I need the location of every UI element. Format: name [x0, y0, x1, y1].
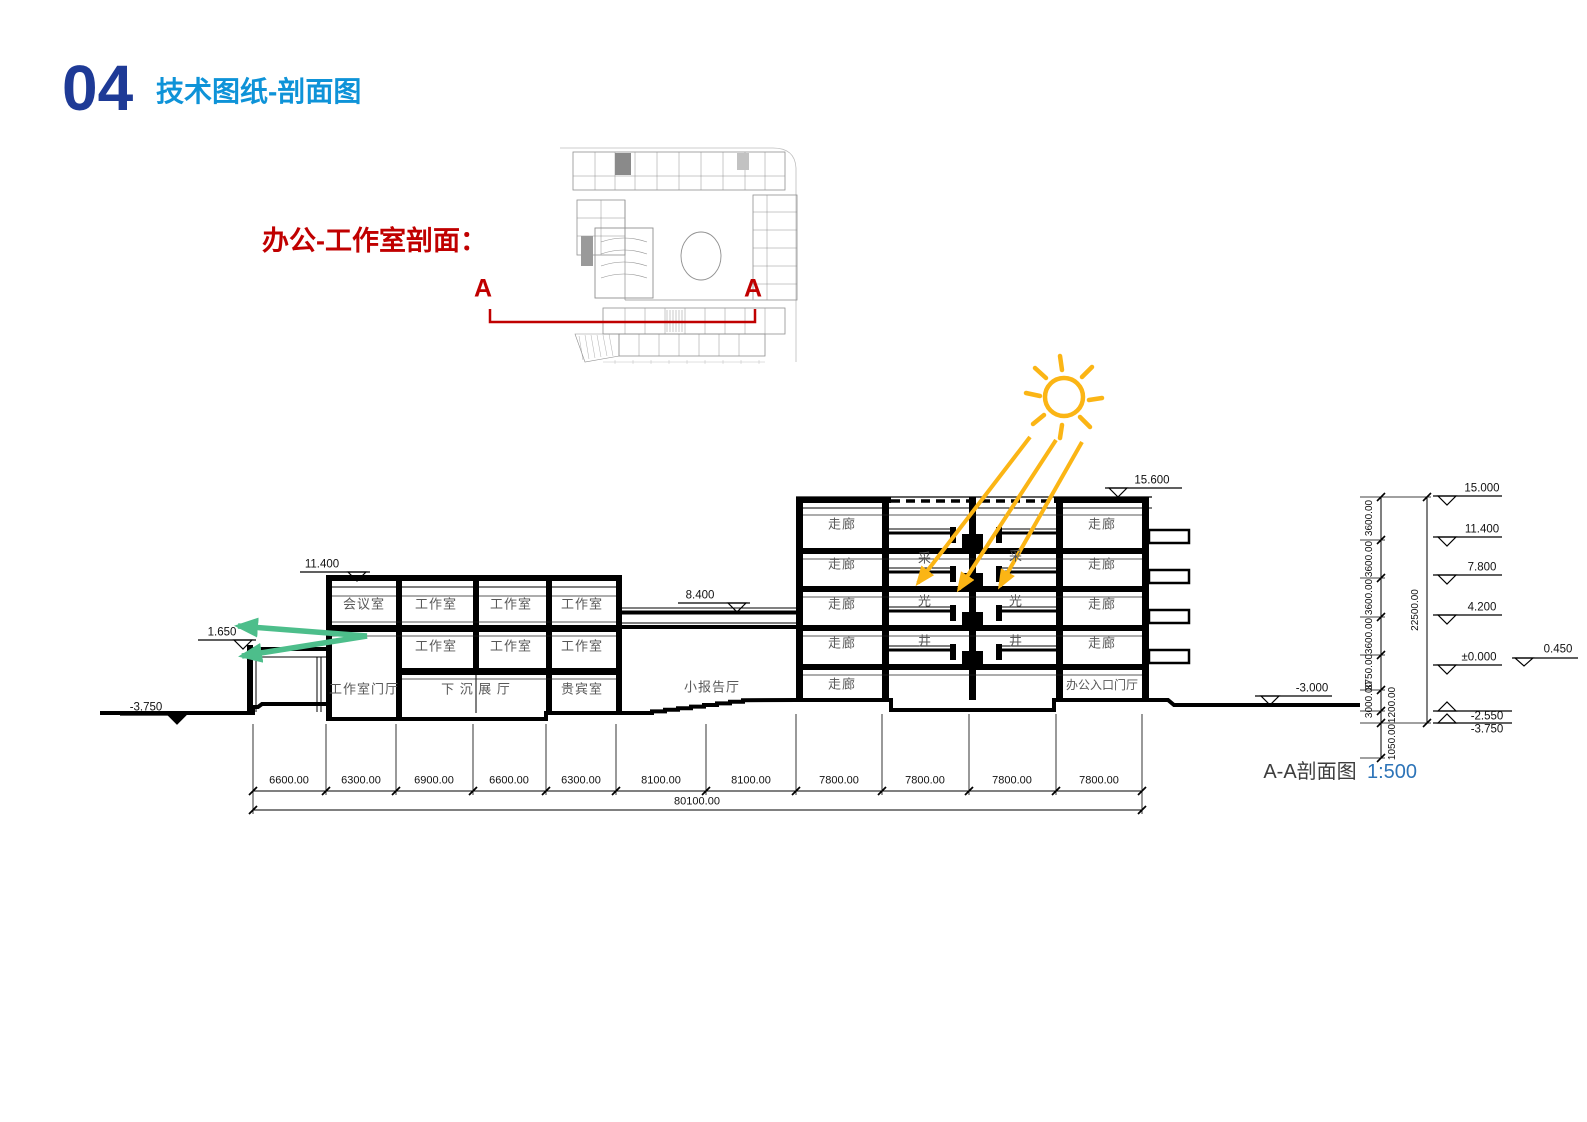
room-label-corridor: 走廊: [828, 637, 856, 650]
hdim-segment: 7800.00: [905, 776, 945, 787]
elevation-ground-right: -3.000: [1296, 683, 1329, 695]
light-well-label: 井: [918, 635, 932, 648]
sun-icon: [1026, 356, 1102, 438]
room-label-lecture-hall: 小报告厅: [684, 681, 740, 694]
light-well-label: 采: [1009, 550, 1023, 563]
plan-marker-a-right: A: [744, 277, 762, 302]
hdim-segment: 6300.00: [561, 776, 601, 787]
room-label-meeting: 会议室: [343, 598, 385, 611]
hdim-segment: 6900.00: [414, 776, 454, 787]
room-label-studio: 工作室: [561, 598, 603, 611]
ground-profile: [100, 700, 1360, 719]
room-label-corridor: 走廊: [828, 518, 856, 531]
hdim-segment: 6600.00: [269, 776, 309, 787]
room-label-corridor: 走廊: [828, 558, 856, 571]
room-label-sunken-hall: 下 沉 展 厅: [441, 683, 511, 696]
room-label-corridor: 走廊: [828, 678, 856, 691]
room-label-office-entrance: 办公入口门厅: [1066, 679, 1138, 691]
hdim-segment: 8100.00: [731, 776, 771, 787]
elevation-m3750: -3.750: [1471, 724, 1504, 736]
link-bridge: [622, 608, 796, 627]
section-drawing: [0, 0, 1587, 1122]
elevation-m2550: -2.550: [1471, 711, 1504, 723]
plan-section-line: [490, 309, 755, 322]
elevation-canopy: 1.650: [208, 627, 237, 639]
room-label-corridor: 走廊: [1088, 558, 1116, 571]
floor-plan-thumbnail: [560, 148, 797, 364]
drawing-caption: A-A剖面图: [1263, 762, 1356, 782]
vdim-below: 1200.00: [1388, 687, 1398, 723]
room-label-studio: 工作室: [415, 598, 457, 611]
room-label-corridor: 走廊: [1088, 598, 1116, 611]
hdim-segment: 6300.00: [341, 776, 381, 787]
room-label-studio-lobby: 工作室门厅: [329, 683, 399, 696]
elevation-0000: ±0.000: [1461, 652, 1496, 664]
light-well-label: 光: [918, 595, 932, 608]
hdim-total: 80100.00: [674, 797, 720, 808]
vdim-segment: 3600.00: [1365, 579, 1375, 615]
vdim-below: 1050.00: [1388, 724, 1398, 760]
plan-marker-a-left: A: [474, 277, 492, 302]
vdim-segment: 3000.00: [1365, 682, 1375, 718]
elevation-7800: 7.800: [1468, 562, 1497, 574]
elevation-0450: 0.450: [1544, 644, 1573, 656]
hdim-segment: 6600.00: [489, 776, 529, 787]
room-label-corridor: 走廊: [1088, 518, 1116, 531]
light-well-label: 光: [1009, 595, 1023, 608]
slide-page: 04 技术图纸-剖面图 办公-工作室剖面：: [0, 0, 1587, 1122]
vdim-segment: 3600.00: [1365, 618, 1375, 654]
light-well-label: 采: [918, 552, 932, 565]
vdim-total: 22500.00: [1411, 589, 1421, 631]
elevation-4200: 4.200: [1468, 602, 1497, 614]
room-label-vip: 贵宾室: [561, 683, 603, 696]
facade-fins: [1149, 530, 1189, 663]
room-label-corridor: 走廊: [1088, 637, 1116, 650]
elevation-15000: 15.000: [1464, 483, 1499, 495]
hdim-segment: 7800.00: [1079, 776, 1119, 787]
hdim-segment: 8100.00: [641, 776, 681, 787]
hdim-segment: 7800.00: [819, 776, 859, 787]
room-label-studio: 工作室: [490, 598, 532, 611]
drawing-scale: 1:500: [1367, 762, 1417, 782]
room-label-studio: 工作室: [415, 640, 457, 653]
elevation-right-roof: 15.600: [1134, 475, 1169, 487]
elevation-bridge: 8.400: [686, 590, 715, 602]
vdim-segment: 3600.00: [1365, 541, 1375, 577]
vdim-segment: 3600.00: [1365, 500, 1375, 536]
light-well-label: 井: [1009, 635, 1023, 648]
room-label-corridor: 走廊: [828, 598, 856, 611]
elevation-left-roof: 11.400: [305, 559, 339, 571]
room-label-studio: 工作室: [490, 640, 532, 653]
room-label-studio: 工作室: [561, 640, 603, 653]
hdim-segment: 7800.00: [992, 776, 1032, 787]
elevation-11400: 11.400: [1465, 524, 1499, 536]
elevation-ground-left: -3.750: [130, 702, 163, 714]
